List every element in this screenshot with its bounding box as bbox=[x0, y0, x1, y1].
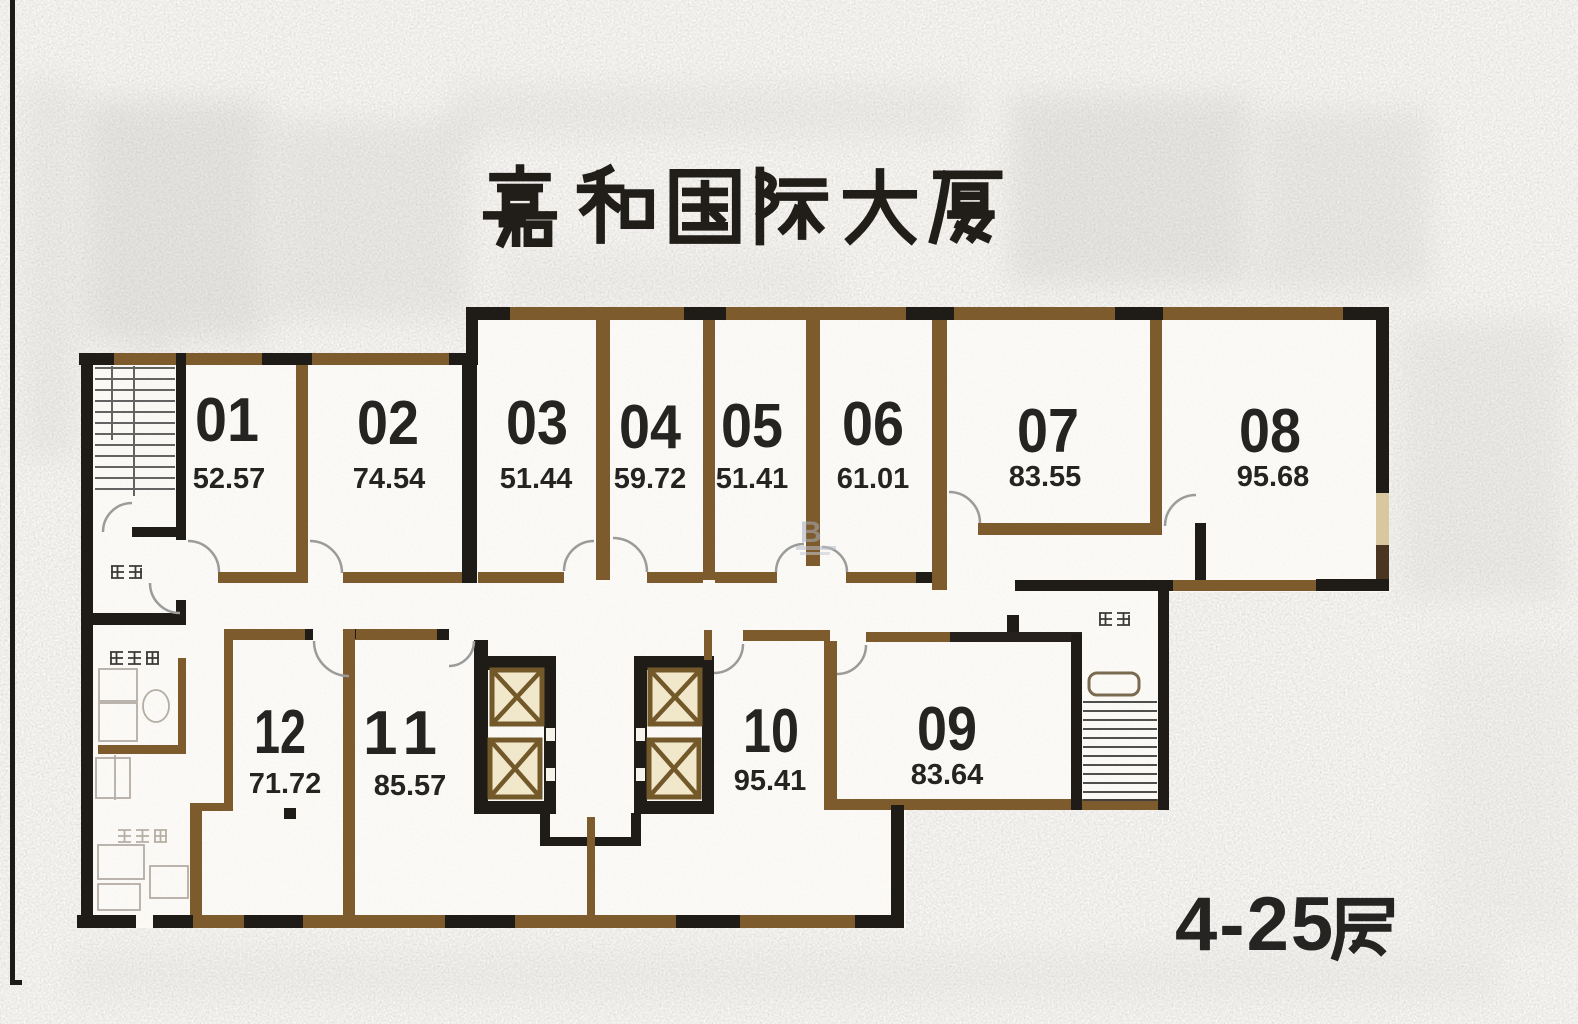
svg-text:01: 01 bbox=[195, 386, 259, 455]
svg-text:59.72: 59.72 bbox=[614, 463, 687, 495]
svg-text:95.41: 95.41 bbox=[734, 765, 807, 797]
svg-text:83.64: 83.64 bbox=[911, 759, 984, 791]
svg-text:04: 04 bbox=[619, 393, 681, 462]
svg-text:09: 09 bbox=[917, 695, 977, 764]
svg-text:05: 05 bbox=[721, 392, 783, 461]
svg-text:51.44: 51.44 bbox=[500, 463, 573, 495]
svg-text:12: 12 bbox=[254, 698, 306, 767]
svg-text:85.57: 85.57 bbox=[374, 770, 447, 802]
svg-text:71.72: 71.72 bbox=[249, 768, 322, 800]
svg-text:74.54: 74.54 bbox=[353, 463, 426, 495]
svg-text:B: B bbox=[800, 516, 822, 549]
svg-text:51.41: 51.41 bbox=[716, 463, 789, 495]
svg-text:08: 08 bbox=[1239, 397, 1301, 466]
svg-text:4-25: 4-25 bbox=[1175, 882, 1335, 967]
svg-text:83.55: 83.55 bbox=[1009, 461, 1082, 493]
svg-text:95.68: 95.68 bbox=[1237, 461, 1310, 493]
svg-text:10: 10 bbox=[743, 697, 799, 766]
svg-text:02: 02 bbox=[357, 389, 419, 458]
svg-text:03: 03 bbox=[506, 389, 568, 458]
svg-text:52.57: 52.57 bbox=[193, 463, 266, 495]
svg-text:61.01: 61.01 bbox=[837, 463, 910, 495]
svg-text:06: 06 bbox=[842, 390, 904, 459]
svg-text:07: 07 bbox=[1017, 397, 1079, 466]
